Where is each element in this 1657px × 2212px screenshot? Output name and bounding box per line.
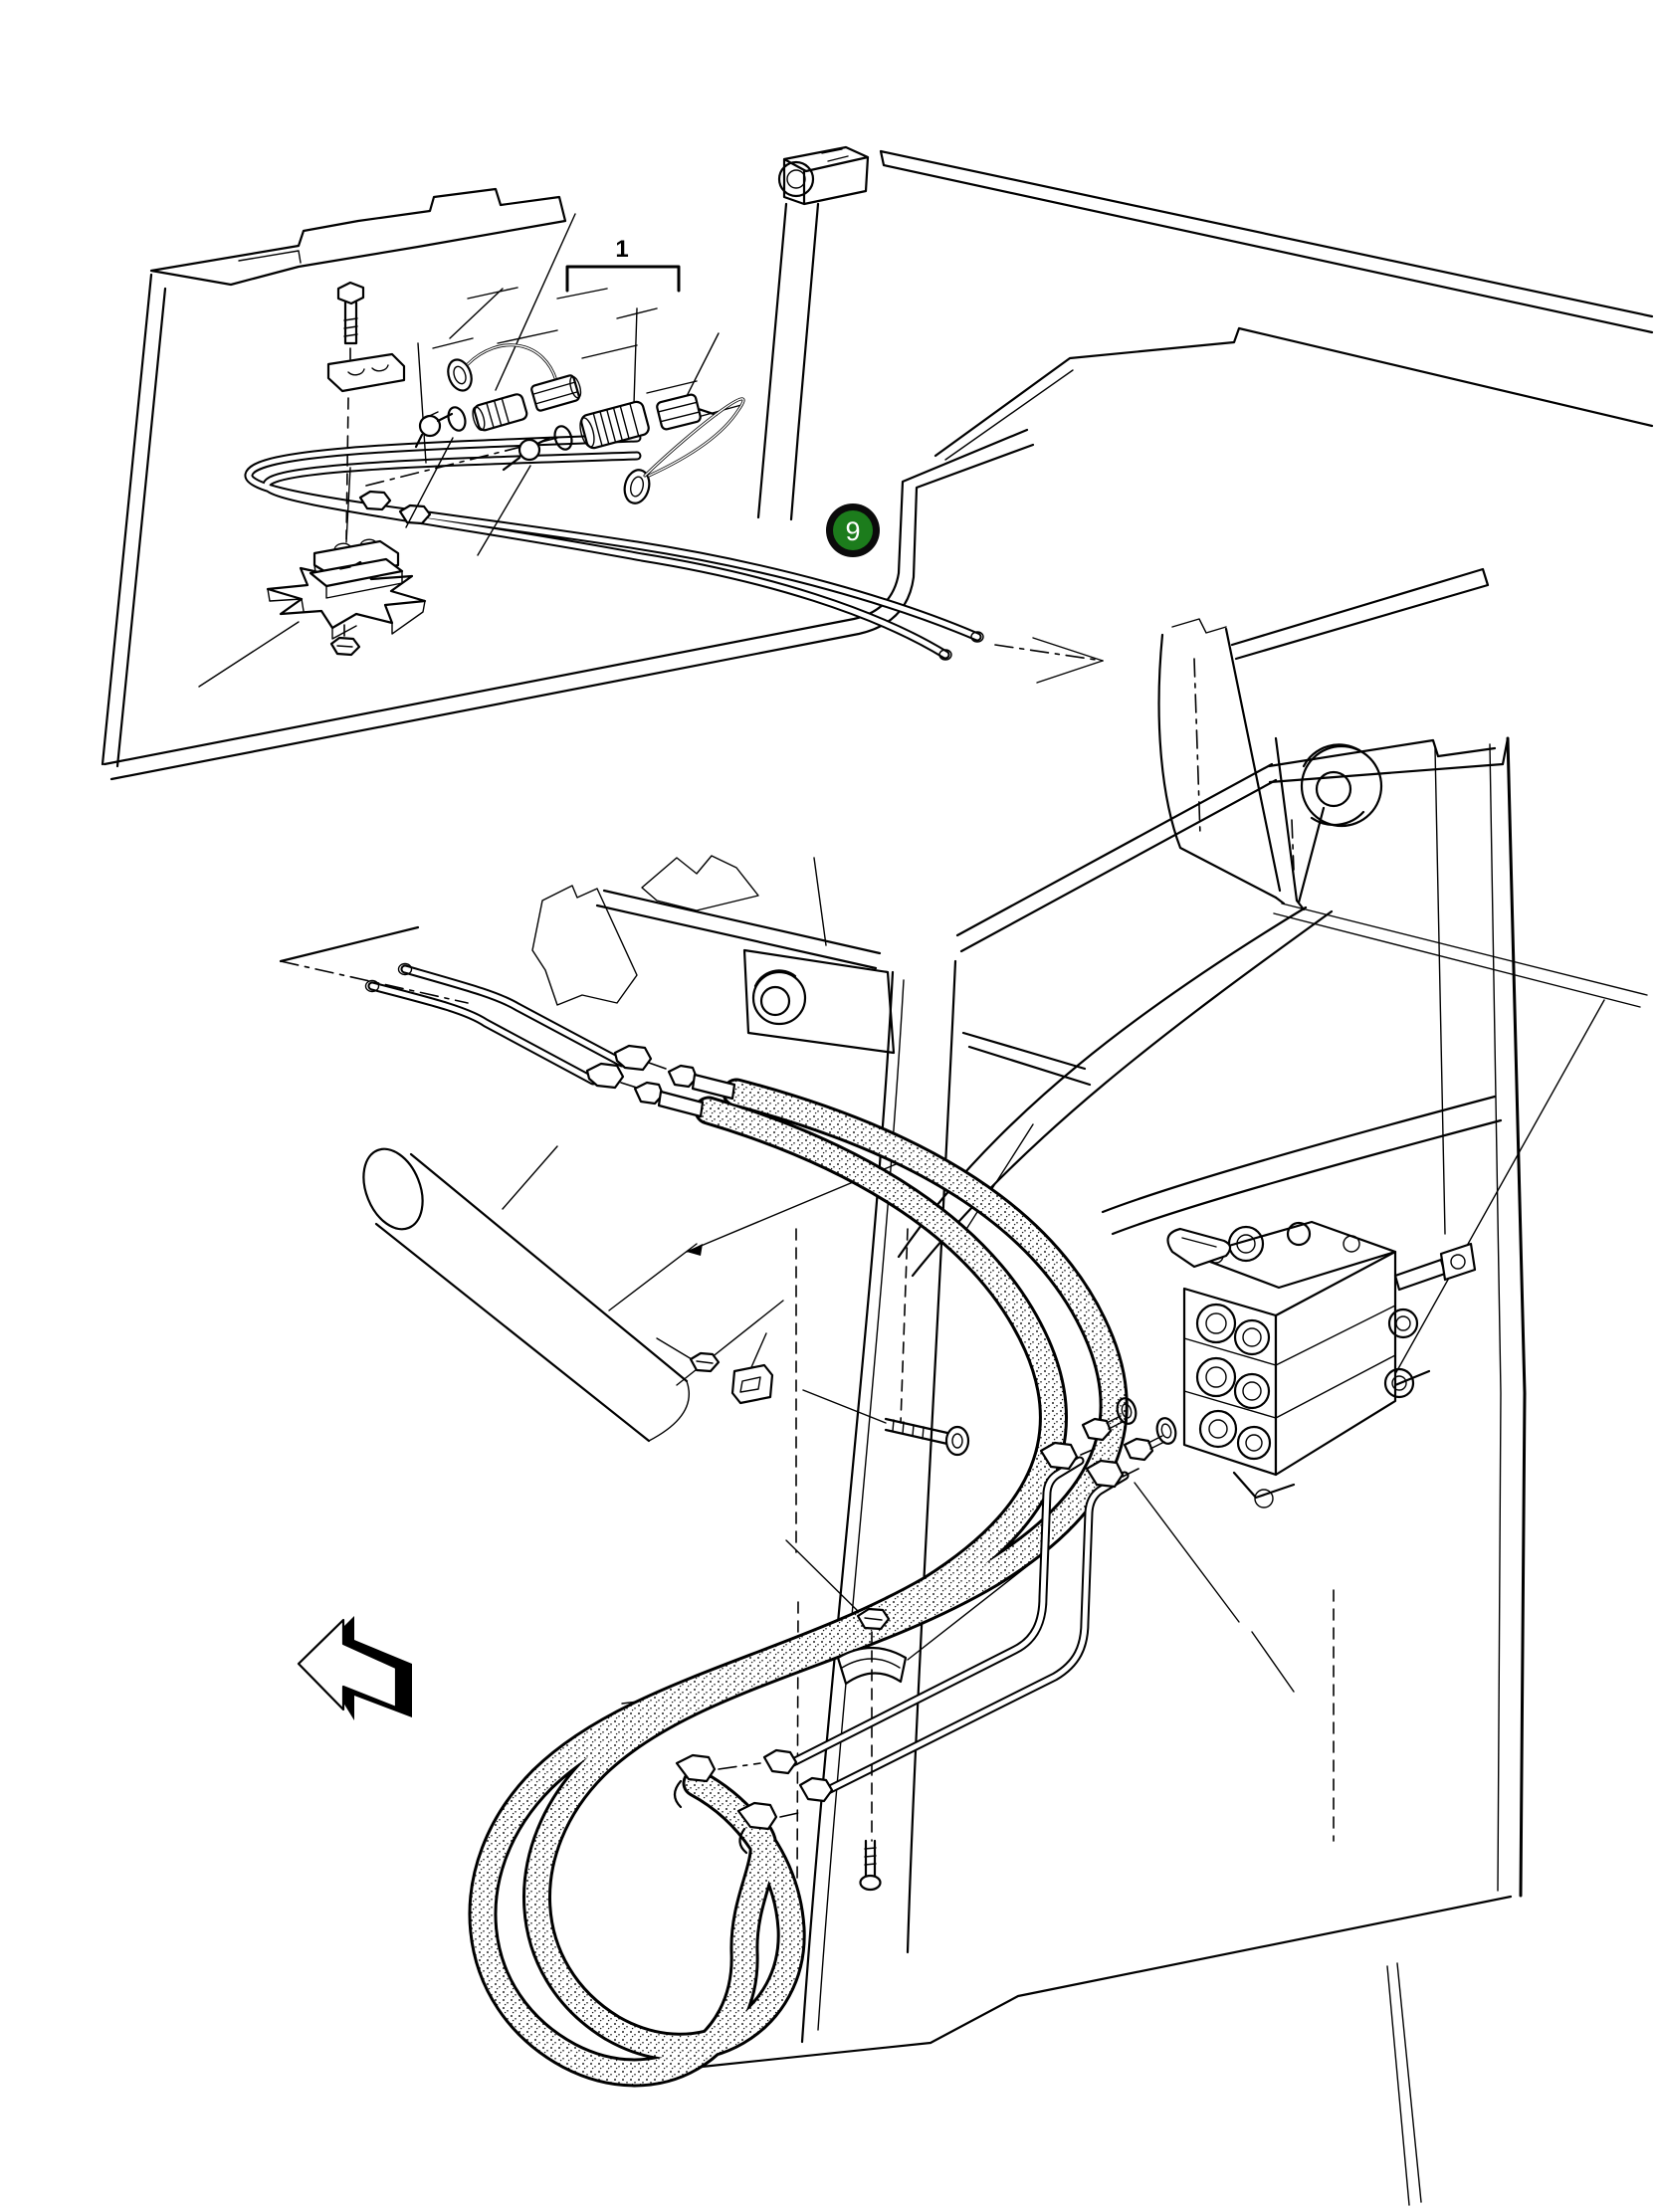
o-ring: [446, 405, 469, 433]
detail-badge: 9: [826, 503, 880, 557]
torn-panel: [103, 189, 565, 766]
quick-coupler: [577, 400, 651, 450]
plug-fitting: [656, 390, 717, 431]
detail-badge-label: 9: [845, 516, 860, 546]
tube-nut: [800, 1778, 832, 1801]
leader-lines-upper: [199, 214, 719, 687]
frame-corner: [1159, 569, 1647, 1007]
control-valve-block: [1168, 1222, 1476, 1508]
clamp-half-upper: [328, 354, 404, 391]
post-boss: [753, 970, 805, 1024]
valve-spools: [1385, 1244, 1475, 1397]
steel-tubes-inlet: [281, 927, 669, 1090]
screw: [886, 1419, 968, 1455]
assembly-bracket: 1: [567, 236, 679, 291]
lower-main-view: [281, 738, 1604, 2205]
hinge-block: [779, 147, 868, 204]
hood-panel: [881, 151, 1652, 460]
parts-diagram-page: 1 9: [0, 0, 1657, 2212]
assembly-bracket-label: 1: [615, 236, 628, 263]
direction-arrow-icon: [299, 1616, 412, 1720]
nut: [331, 638, 359, 655]
mast: [758, 147, 868, 519]
coupler-fittings: [416, 345, 743, 506]
hex-coupler: [530, 373, 583, 411]
bolt: [338, 283, 363, 343]
o-ring: [1154, 1416, 1178, 1446]
nut: [858, 1609, 889, 1629]
hydraulic-hoses: [483, 1066, 1114, 2073]
pivot-boss: [1302, 744, 1381, 826]
cylinder-barrel: [352, 1140, 689, 1441]
nut: [691, 1353, 719, 1371]
upper-detail-view: 1 9: [103, 147, 1652, 1007]
clip-plate: [732, 1365, 772, 1403]
tube-nut: [764, 1750, 796, 1773]
coupler-sleeve: [471, 393, 528, 433]
bolt: [861, 1841, 881, 1890]
